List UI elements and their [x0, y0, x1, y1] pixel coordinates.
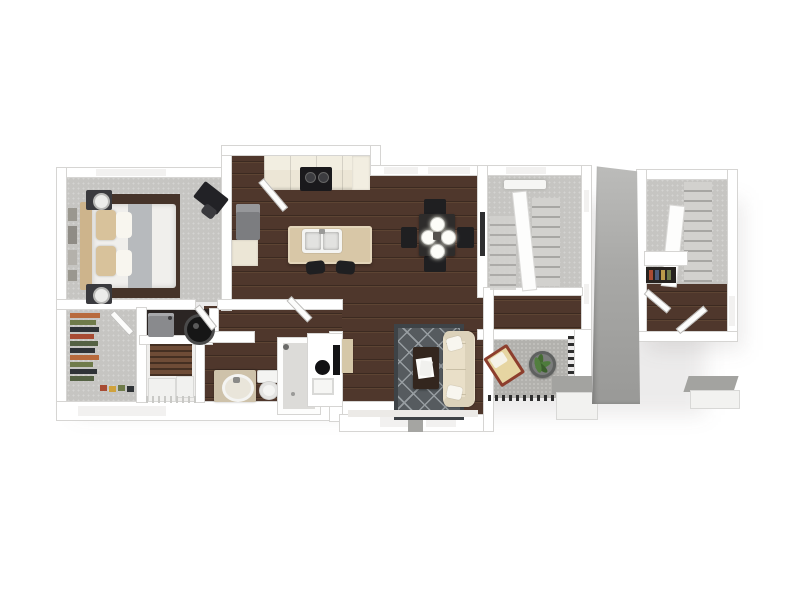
closet-window [78, 406, 166, 416]
dining-chair-west [401, 227, 417, 248]
hanging-clothes [70, 313, 100, 318]
hall-wall-art [480, 212, 485, 256]
place-setting-east [441, 230, 456, 245]
throw-pillow-2 [446, 385, 463, 401]
place-setting-north [430, 217, 445, 232]
stairwell-window [506, 167, 546, 174]
storage-right-wall [196, 342, 204, 402]
wall-frame-3 [68, 250, 77, 265]
hanging-clothes [70, 376, 94, 381]
refrigerator [236, 204, 260, 240]
kitchen-top-wall [222, 146, 380, 155]
dining-chair-north [424, 199, 446, 215]
hanging-clothes [70, 369, 97, 374]
stove-burner [318, 172, 329, 183]
patio-storage-box-front [556, 392, 598, 420]
place-setting-south [430, 244, 445, 259]
floor-plan-canvas [0, 0, 800, 600]
sink-basin-left [305, 232, 321, 250]
hall-top-wall-a [57, 300, 195, 309]
hanging-clothes [70, 320, 96, 325]
hanging-clothes [70, 341, 98, 346]
hanging-clothes [70, 327, 99, 332]
stairs-left-flight [490, 216, 516, 290]
bedroom-window [96, 169, 166, 176]
sink-basin-right [323, 232, 339, 250]
bar-stool-2 [335, 260, 355, 275]
wire-shelf [146, 396, 196, 403]
pillow-tan-2 [96, 246, 116, 276]
dining-window-1 [384, 167, 418, 174]
pillow-white-1 [116, 212, 132, 238]
gray-divider-wall [592, 164, 640, 404]
stair-side-window-1 [584, 190, 589, 212]
patio-top-wall [478, 330, 581, 339]
stair-side-window-2 [584, 284, 589, 304]
wall-frame-2 [68, 226, 77, 244]
wall-tv [333, 345, 340, 375]
shower-drain [291, 392, 295, 396]
outdoor-planter-box-front [690, 390, 740, 409]
shelf-item [649, 270, 653, 280]
wall-frame-4 [68, 270, 77, 281]
headboard [80, 202, 92, 290]
sink-faucet [233, 377, 240, 383]
sofa-back [465, 333, 474, 405]
round-basin-sink [315, 360, 330, 375]
left-outer-wall [57, 168, 66, 420]
hanging-clothes [70, 334, 94, 339]
shoe [118, 385, 125, 391]
entry-unit-window [729, 296, 735, 326]
shoe [100, 385, 107, 391]
base-counter [232, 240, 258, 266]
hanging-clothes [70, 362, 93, 367]
entry-unit-half-wall [645, 252, 687, 265]
island-faucet [319, 229, 325, 234]
dining-window-2 [428, 167, 470, 174]
pillow-tan-1 [96, 210, 116, 240]
shoe [127, 386, 134, 392]
bar-stool-1 [305, 260, 325, 275]
table-lamp-top [93, 193, 110, 210]
sofa-seam [446, 369, 466, 370]
storage-bin-2 [176, 376, 194, 398]
stairs-right-flight [532, 198, 560, 286]
dining-chair-east [457, 227, 474, 248]
shelf-item [661, 270, 665, 280]
hall-top-wall-b [218, 300, 342, 309]
table-centerpiece [433, 232, 441, 240]
console-table [342, 339, 353, 373]
table-lamp-bottom [93, 287, 110, 304]
shower-head [283, 344, 289, 350]
hanging-clothes [70, 348, 95, 353]
shoe [109, 386, 116, 392]
water-heater-cap [193, 323, 199, 329]
entry-unit-stairs [684, 182, 712, 282]
living-window-sill [348, 410, 478, 417]
closet-right-wall [137, 308, 146, 402]
toilet-bowl [259, 381, 279, 400]
corner-cabinet [352, 156, 370, 190]
wall-frame-1 [68, 208, 77, 221]
entry-unit-bottom-wall [637, 332, 737, 341]
shelf-item [655, 270, 659, 280]
louvered-cabinet [150, 344, 192, 376]
shelf-item [667, 270, 671, 280]
papers-2 [419, 360, 433, 376]
entry-unit-top-wall [637, 170, 737, 179]
washer-knob [168, 316, 172, 320]
foyer-left-wall [222, 146, 231, 310]
cabinet-fixture [312, 378, 334, 395]
stairwell-ceiling-light [504, 180, 546, 189]
stove-burner [305, 172, 316, 183]
pillow-white-2 [116, 250, 132, 276]
hanging-clothes [70, 355, 99, 360]
